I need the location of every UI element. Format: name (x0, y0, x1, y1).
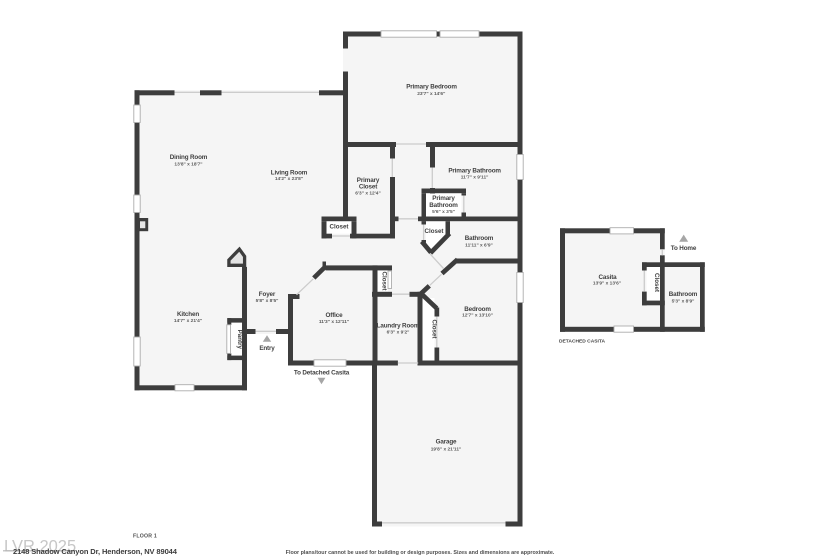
svg-text:2148 Shadow Canyon Dr, Henders: 2148 Shadow Canyon Dr, Henderson, NV 890… (13, 547, 178, 556)
svg-text:5'8" x 8'5": 5'8" x 8'5" (256, 298, 279, 304)
svg-text:Closet: Closet (359, 184, 378, 191)
svg-text:Kitchen: Kitchen (177, 311, 199, 318)
svg-text:To Detached Casita: To Detached Casita (294, 370, 350, 377)
svg-text:13'9" x 13'6": 13'9" x 13'6" (593, 280, 621, 286)
svg-text:Bathroom: Bathroom (669, 291, 698, 298)
svg-text:12'7" x 13'10": 12'7" x 13'10" (462, 312, 493, 318)
svg-text:14'7" x 21'4": 14'7" x 21'4" (174, 318, 202, 324)
svg-text:Closet: Closet (330, 223, 349, 230)
svg-text:23'7" x 14'6": 23'7" x 14'6" (417, 91, 445, 97)
svg-text:11'3" x 12'11": 11'3" x 12'11" (319, 319, 349, 325)
svg-text:Casita: Casita (599, 274, 618, 281)
svg-text:Dining Room: Dining Room (170, 154, 208, 161)
svg-text:Foyer: Foyer (259, 291, 276, 298)
svg-text:Primary: Primary (432, 195, 455, 202)
svg-text:5'6" x 3'5": 5'6" x 3'5" (432, 209, 455, 215)
svg-text:Floor plans/tour cannot be use: Floor plans/tour cannot be used for buil… (286, 550, 555, 556)
svg-text:6'3" x 12'4": 6'3" x 12'4" (355, 191, 381, 197)
svg-text:Primary Bathroom: Primary Bathroom (448, 168, 501, 175)
svg-text:14'2" x 23'8": 14'2" x 23'8" (275, 176, 303, 182)
svg-text:19'8" x 21'11": 19'8" x 21'11" (431, 446, 462, 452)
svg-text:Office: Office (326, 312, 344, 319)
svg-text:6'3" x 9'2": 6'3" x 9'2" (387, 330, 410, 336)
svg-text:13'8" x 18'7": 13'8" x 18'7" (174, 162, 202, 168)
svg-text:DETACHED CASITA: DETACHED CASITA (559, 338, 605, 344)
svg-text:FLOOR 1: FLOOR 1 (133, 533, 157, 539)
svg-text:Closet: Closet (653, 273, 660, 292)
svg-text:Garage: Garage (436, 439, 457, 446)
svg-text:Bathroom: Bathroom (465, 235, 494, 242)
svg-text:Bedroom: Bedroom (464, 306, 491, 313)
svg-text:To Home: To Home (671, 245, 697, 252)
svg-text:11'7" x 9'11": 11'7" x 9'11" (461, 174, 489, 180)
svg-text:Closet: Closet (430, 320, 437, 339)
svg-text:Laundry Room: Laundry Room (377, 322, 420, 329)
svg-text:11'11" x 6'9": 11'11" x 6'9" (465, 242, 493, 248)
svg-text:Closet: Closet (380, 272, 387, 291)
svg-text:5'3" x 8'9": 5'3" x 8'9" (672, 299, 695, 305)
svg-text:Entry: Entry (259, 345, 275, 352)
svg-text:Pantry: Pantry (236, 330, 243, 350)
svg-text:Living Room: Living Room (271, 170, 308, 177)
svg-text:Closet: Closet (425, 228, 444, 235)
svg-text:Primary Bedroom: Primary Bedroom (406, 84, 457, 91)
svg-text:Bathroom: Bathroom (429, 202, 458, 209)
